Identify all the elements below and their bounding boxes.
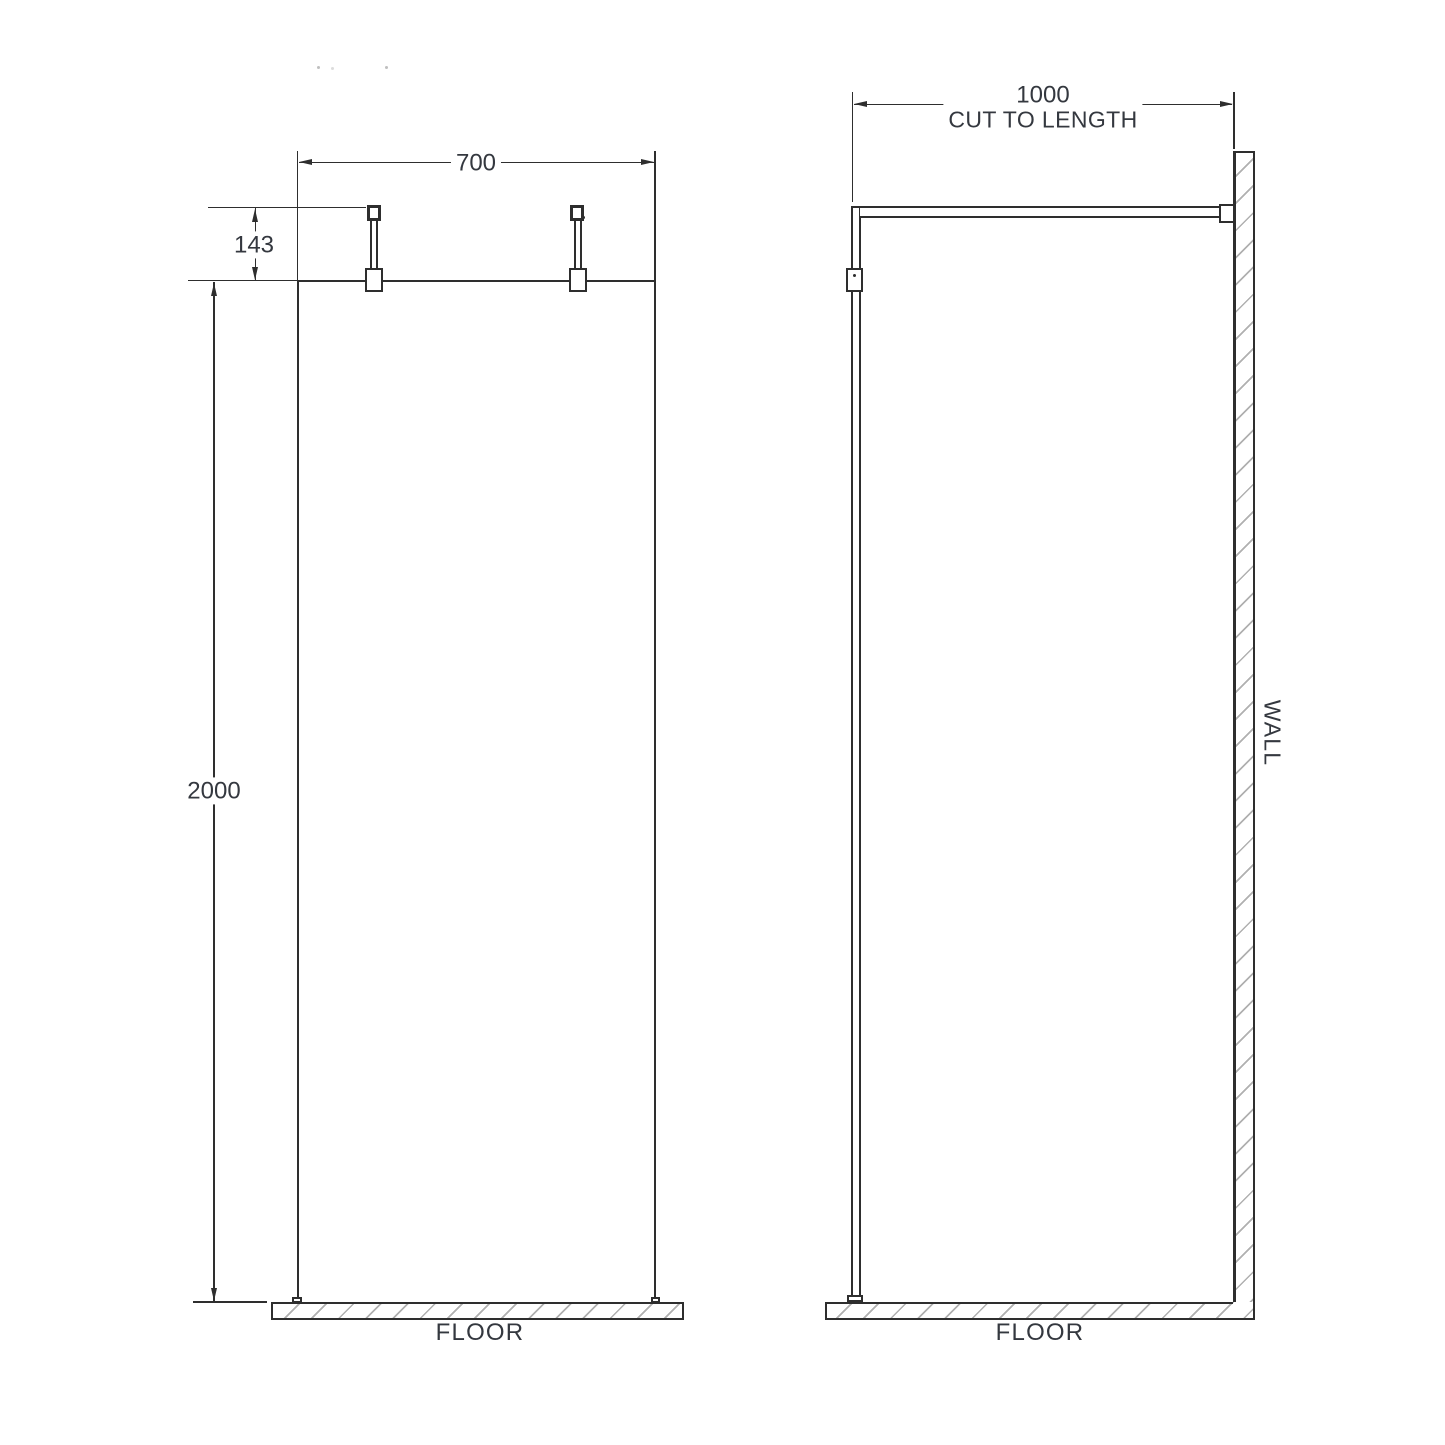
rod-top-fitting-right [570, 205, 584, 221]
scan-artifact-dot [385, 66, 388, 69]
dim-depth-label: 1000 CUT TO LENGTH [943, 81, 1142, 132]
dim-depth-value: 1000 [948, 82, 1137, 107]
rod-top-fitting-left [367, 205, 381, 221]
glass-panel-edge [851, 206, 861, 1304]
wall-label: WALL [1259, 700, 1286, 767]
arrow-left-icon [299, 159, 312, 165]
panel-foot-right [651, 1297, 661, 1304]
dim-depth-note: CUT TO LENGTH [948, 108, 1137, 132]
panel-top-extension-line [188, 280, 297, 282]
floor-section-front [271, 1302, 684, 1320]
arrow-up-icon [211, 283, 217, 296]
wall-section [1233, 151, 1255, 1320]
support-bar-tube [860, 206, 1220, 218]
dim-height-label: 2000 [182, 777, 245, 804]
glass-clamp-right [569, 268, 587, 293]
panel-foot-side [847, 1295, 863, 1302]
panel-foot-left [292, 1297, 302, 1304]
technical-drawing: 700 143 2000 FLOOR [0, 0, 1445, 1445]
arrow-down-icon [211, 1288, 217, 1301]
floor-label-front: FLOOR [436, 1319, 525, 1347]
arrow-right-icon [641, 159, 654, 165]
fitting-screw-icon [582, 216, 585, 219]
scan-artifact-dot [331, 67, 334, 70]
floor-section-side [825, 1302, 1255, 1320]
dim-depth-extension-left [852, 92, 854, 202]
glass-panel-front [297, 280, 657, 1304]
clamp-screw-icon [853, 274, 856, 277]
dim-drop-label: 143 [229, 231, 279, 258]
dim-width-label: 700 [451, 149, 501, 176]
dim-drop-reference-line [208, 207, 366, 209]
floor-top-edge-line [825, 1302, 1233, 1305]
arrow-right-icon [1220, 101, 1233, 107]
arrow-left-icon [854, 101, 867, 107]
glass-clamp-side [846, 268, 863, 293]
floor-label-side: FLOOR [996, 1319, 1085, 1347]
dim-width-extension-left [297, 151, 299, 280]
dim-width-extension-right [654, 151, 656, 280]
scan-artifact-dot [317, 66, 320, 69]
dim-height-reference-line [193, 1301, 267, 1303]
glass-clamp-left [365, 268, 383, 293]
arrow-up-icon [252, 209, 258, 222]
arrow-down-icon [252, 267, 258, 280]
wall-inner-face-line [1233, 151, 1236, 1303]
dim-depth-extension-right [1233, 92, 1235, 149]
wall-bracket [1219, 204, 1235, 223]
